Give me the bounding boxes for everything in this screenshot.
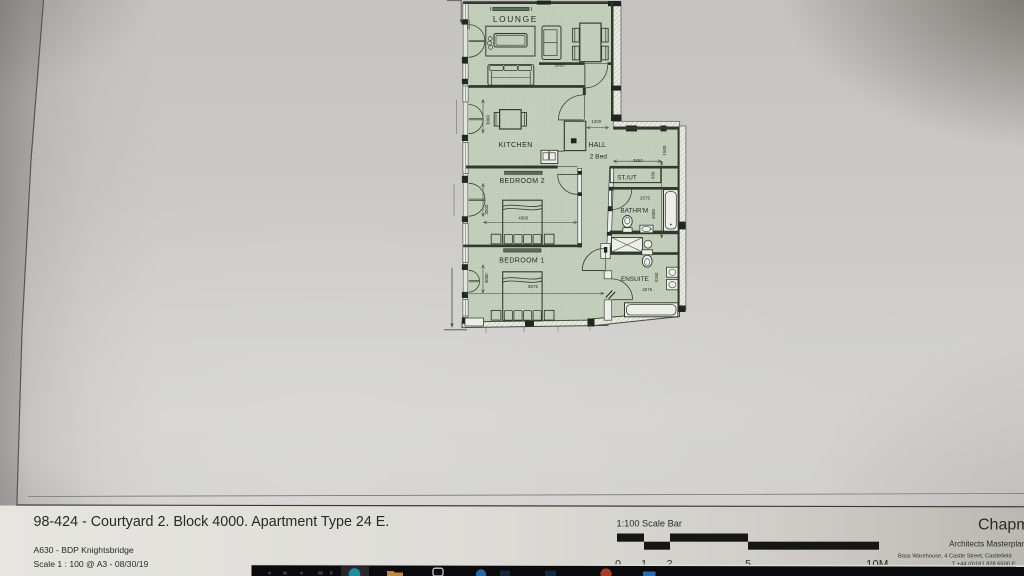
svg-text:BATHR'M: BATHR'M [620, 207, 648, 214]
svg-text:2575: 2575 [640, 195, 650, 200]
svg-text:KITCHEN: KITCHEN [499, 142, 533, 149]
svg-text:3000: 3000 [484, 273, 489, 283]
svg-text:Architects Masterplan: Architects Masterplan [949, 540, 1024, 549]
svg-text:A630 - BDP Knightsbridge: A630 - BDP Knightsbridge [34, 545, 134, 555]
svg-text:5575: 5575 [528, 284, 538, 289]
svg-text:3250: 3250 [466, 19, 471, 29]
svg-text:1:100 Scale Bar: 1:100 Scale Bar [617, 519, 682, 529]
svg-text:2 Bed: 2 Bed [590, 153, 608, 160]
svg-text:3000: 3000 [484, 204, 489, 214]
svg-text:Scale 1 : 100 @ A3 - 08/30/19: Scale 1 : 100 @ A3 - 08/30/19 [34, 559, 149, 569]
svg-text:BEDROOM 1: BEDROOM 1 [499, 258, 545, 265]
svg-text:ENSUITE: ENSUITE [621, 276, 649, 283]
svg-text:HALL: HALL [589, 142, 607, 149]
svg-text:Chapma: Chapma [978, 517, 1024, 534]
svg-text:ST./UT: ST./UT [617, 175, 637, 182]
svg-text:3850: 3850 [633, 158, 643, 163]
svg-text:2000: 2000 [651, 209, 656, 219]
svg-text:LOUNGE: LOUNGE [493, 14, 538, 24]
svg-text:3000: 3000 [486, 115, 491, 125]
svg-text:BEDROOM 2: BEDROOM 2 [499, 178, 545, 185]
svg-text:5650: 5650 [555, 62, 565, 67]
svg-text:1200: 1200 [591, 119, 601, 124]
svg-text:550: 550 [651, 171, 656, 179]
svg-text:4300: 4300 [518, 215, 528, 220]
svg-text:98-424 - Courtyard 2. Block 40: 98-424 - Courtyard 2. Block 4000. Apartm… [34, 514, 390, 530]
svg-text:2575: 2575 [642, 287, 652, 292]
svg-text:1500: 1500 [662, 145, 667, 155]
svg-text:3150: 3150 [654, 272, 659, 282]
svg-text:Bass Warehouse, 4 Castle Stree: Bass Warehouse, 4 Castle Street, Castlef… [898, 554, 1012, 560]
